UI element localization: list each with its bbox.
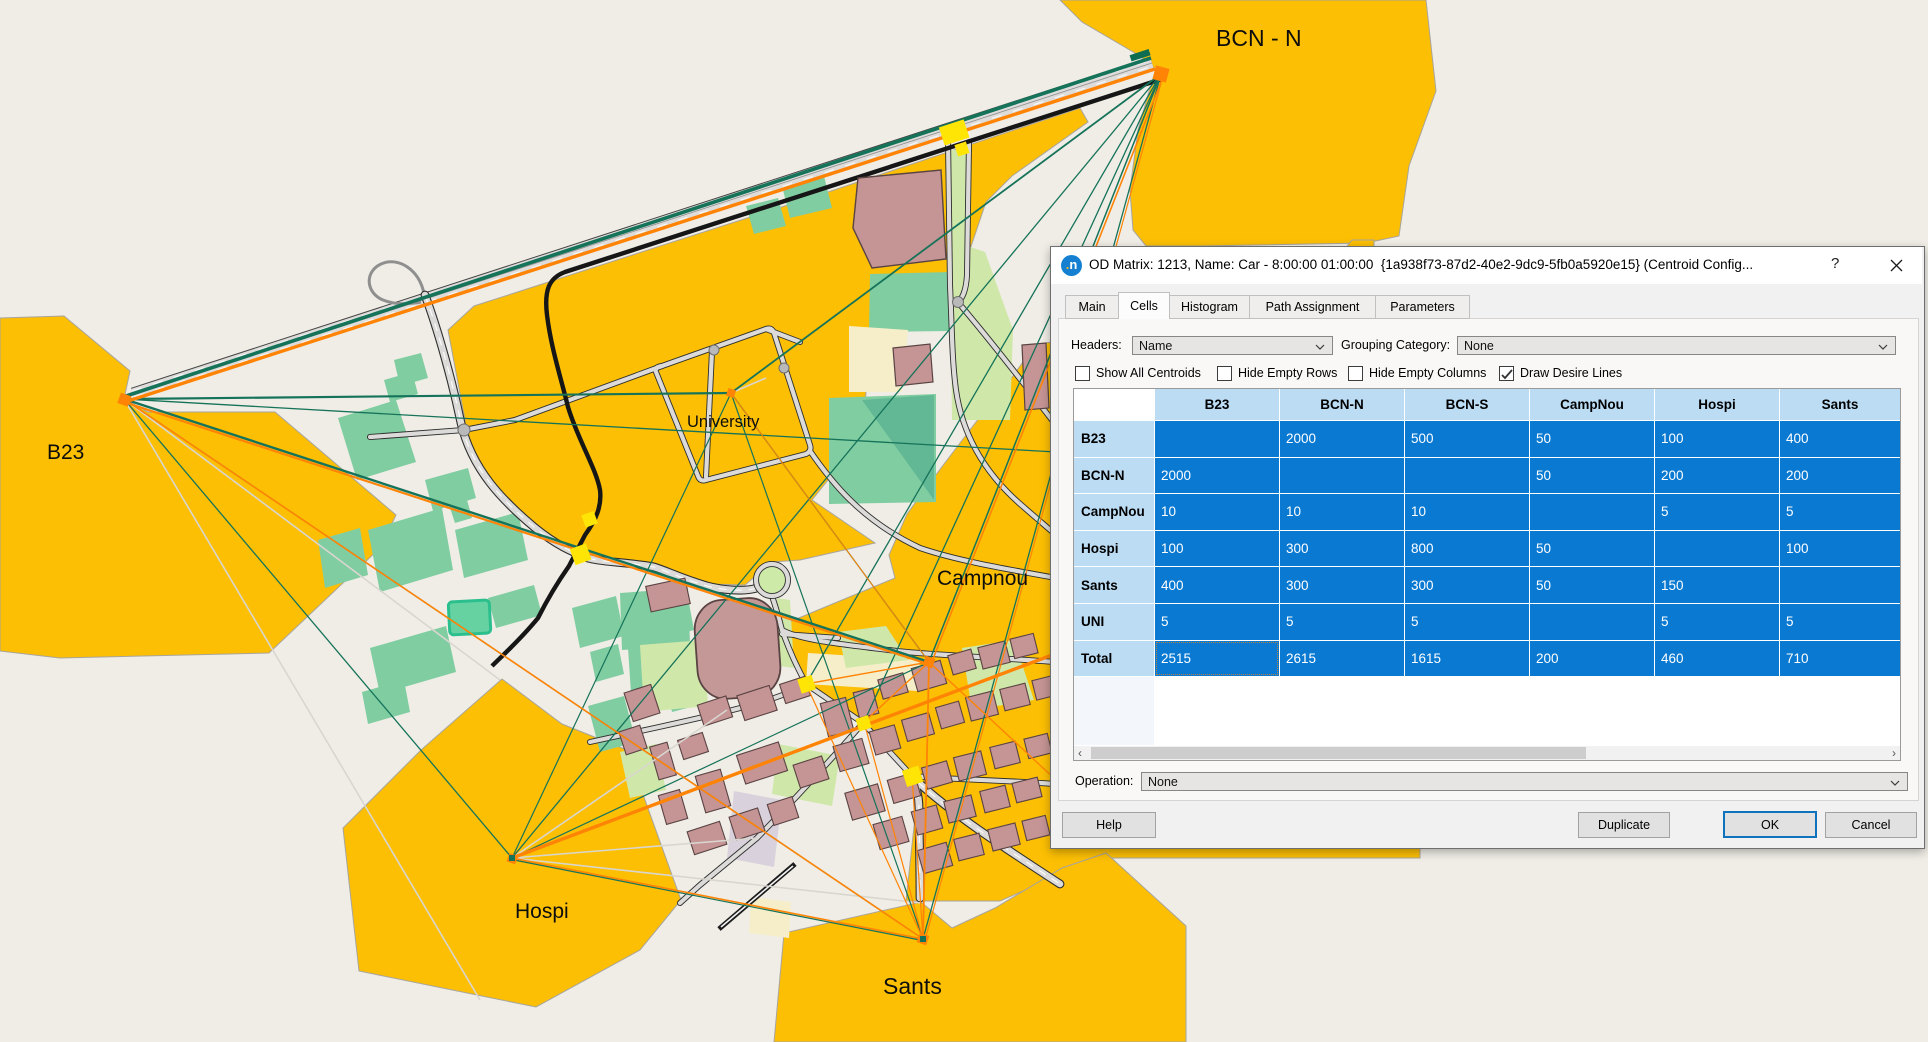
svg-text:Campnou: Campnou bbox=[937, 567, 1028, 590]
svg-text:BCN - N: BCN - N bbox=[1216, 25, 1302, 51]
svg-text:University: University bbox=[687, 413, 760, 431]
svg-text:B23: B23 bbox=[47, 441, 84, 464]
svg-text:Hospi: Hospi bbox=[515, 900, 569, 923]
svg-text:Sants: Sants bbox=[883, 973, 942, 999]
